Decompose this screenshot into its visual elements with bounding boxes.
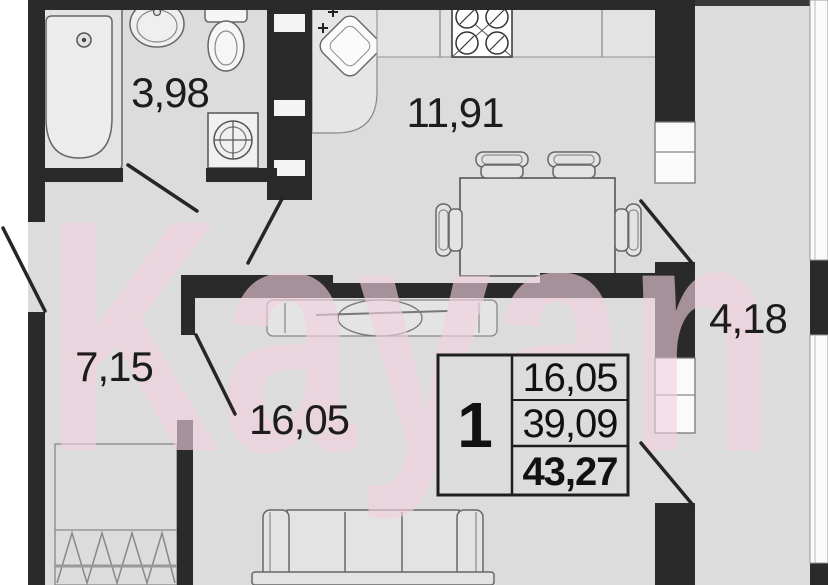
apartment-info-box: 1 16,05 39,09 43,27: [438, 355, 628, 495]
floor-plan-svg: Kayan 3,98 11,91 7,15 16,05 4,18 1 16,05…: [0, 0, 828, 585]
balcony-area-label: 4,18: [709, 295, 787, 342]
area-without-balcony-value: 39,09: [522, 402, 617, 446]
room-count: 1: [457, 389, 493, 461]
floor-plan: Kayan 3,98 11,91 7,15 16,05 4,18 1 16,05…: [0, 0, 828, 585]
living-area-value: 16,05: [522, 356, 617, 400]
toilet-icon: [205, 6, 247, 71]
kitchen-area-label: 11,91: [407, 89, 504, 136]
hallway-area-label: 7,15: [75, 343, 153, 390]
bathroom-area-label: 3,98: [131, 69, 209, 116]
watermark-text: Kayan: [45, 151, 775, 522]
kitchen-counter: [377, 2, 658, 57]
stove-icon: [452, 4, 512, 57]
total-area-value: 43,27: [522, 450, 617, 494]
bathtub-icon: [36, 6, 122, 170]
sofa-icon: [252, 510, 494, 585]
kitchen-sink-icon: [312, 2, 384, 133]
living-room-area-label: 16,05: [249, 396, 349, 443]
